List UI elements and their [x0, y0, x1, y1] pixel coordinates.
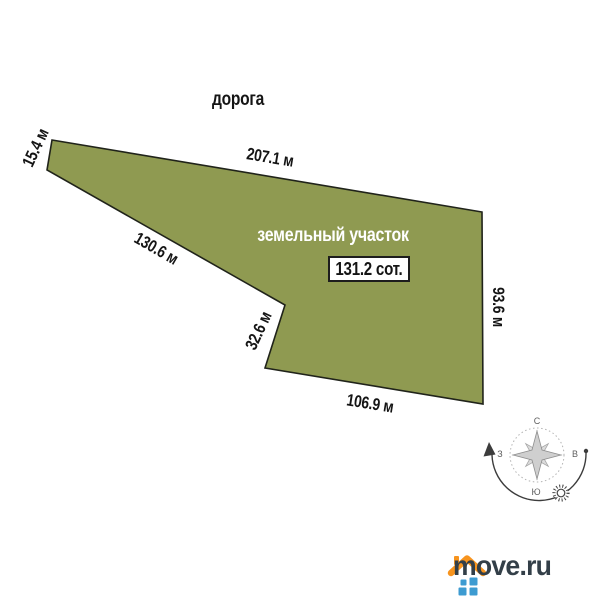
compass-south-label: Ю [531, 487, 540, 497]
compass-west-label: З [497, 449, 502, 459]
dimension-label-right-side: 93.6 м [488, 287, 508, 327]
compass-east-label: В [572, 449, 578, 459]
compass-north-label: С [534, 416, 541, 426]
sun-icon [554, 486, 568, 500]
compass-rose: С В Ю З [484, 416, 589, 501]
move-ru-logo: move.ru [447, 552, 556, 582]
area-value: 131.2 сот. [335, 259, 402, 280]
plot-title: земельный участок [257, 225, 409, 247]
road-label: дорога [212, 89, 264, 111]
area-box: 131.2 сот. [328, 256, 410, 282]
sun-path-start-dot [584, 449, 588, 453]
land-plot-polygon [47, 140, 483, 404]
diagram-canvas: С В Ю З [0, 0, 600, 600]
land-plot-diagram: С В Ю З дорога 15.4 м 207.1 м 130.6 м 32… [0, 0, 600, 600]
sun-path-arrowhead [484, 442, 496, 457]
logo-text: move.ru [453, 552, 551, 580]
compass-star-main [513, 431, 561, 479]
